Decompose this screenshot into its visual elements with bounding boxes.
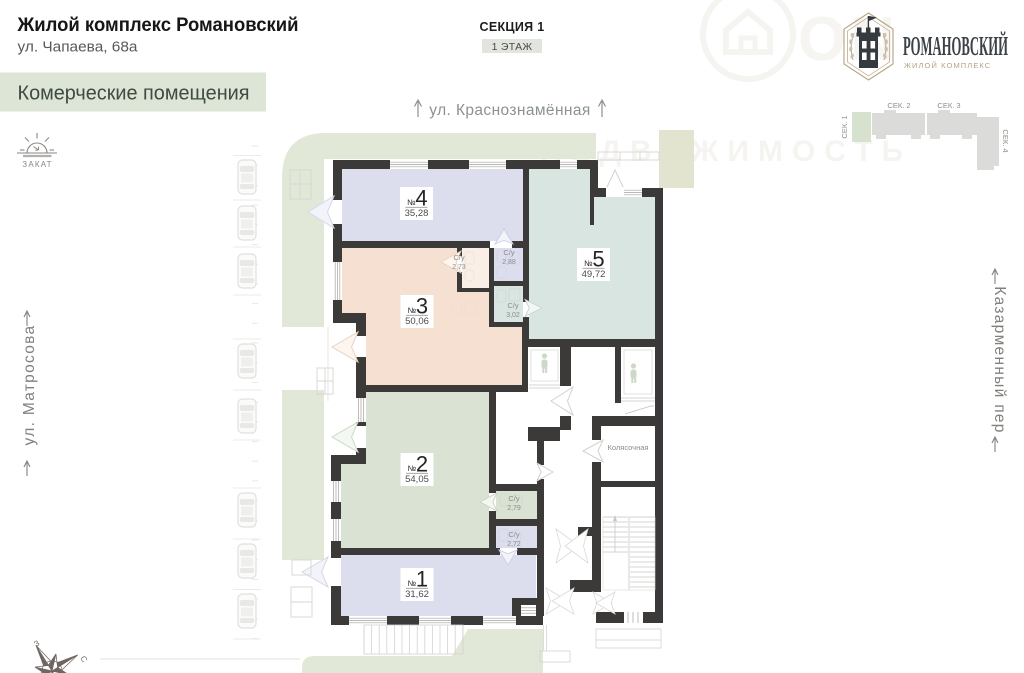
- svg-text:Казарменный пер: Казарменный пер: [991, 286, 1008, 433]
- svg-text:31,62: 31,62: [405, 589, 429, 600]
- svg-text:1: 1: [416, 567, 428, 592]
- svg-text:49,72: 49,72: [582, 269, 606, 280]
- svg-text:ул. Чапаева, 68а: ул. Чапаева, 68а: [18, 40, 139, 56]
- svg-text:ЖИЛОЙ КОМПЛЕКС: ЖИЛОЙ КОМПЛЕКС: [904, 61, 991, 70]
- svg-text:СЕК. 1: СЕК. 1: [840, 115, 849, 138]
- svg-text:З: З: [32, 638, 41, 648]
- svg-text:5: 5: [592, 247, 604, 272]
- svg-text:С/у: С/у: [508, 494, 520, 503]
- svg-text:3: 3: [416, 294, 428, 319]
- svg-text:1 ЭТАЖ: 1 ЭТАЖ: [492, 41, 533, 53]
- svg-text:С/у: С/у: [507, 301, 519, 310]
- svg-text:СЕКЦИЯ 1: СЕКЦИЯ 1: [480, 20, 545, 34]
- svg-text:С/у: С/у: [508, 530, 520, 539]
- svg-text:35,28: 35,28: [405, 208, 429, 219]
- svg-text:С/у: С/у: [503, 248, 515, 257]
- svg-text:2: 2: [416, 452, 428, 477]
- svg-text:2,88: 2,88: [502, 259, 516, 266]
- svg-text:Комерческие помещения: Комерческие помещения: [18, 83, 250, 105]
- svg-text:Колясочная: Колясочная: [608, 443, 649, 452]
- svg-text:С: С: [78, 654, 89, 664]
- svg-text:РОМАНОВСКИЙ: РОМАНОВСКИЙ: [903, 31, 1008, 61]
- svg-text:2,79: 2,79: [507, 505, 521, 512]
- svg-text:С/у: С/у: [453, 253, 465, 262]
- svg-text:54,05: 54,05: [405, 474, 429, 485]
- svg-text:ул. Матросова: ул. Матросова: [21, 325, 38, 446]
- svg-text:СЕК. 4: СЕК. 4: [1001, 129, 1010, 152]
- svg-text:ON: ON: [798, 5, 899, 74]
- svg-text:ул. Краснознамённая: ул. Краснознамённая: [429, 102, 590, 119]
- svg-text:ЗАКАТ: ЗАКАТ: [22, 160, 52, 169]
- svg-text:4: 4: [415, 186, 427, 211]
- svg-text:2,73: 2,73: [452, 264, 466, 271]
- svg-text:СЕК. 2: СЕК. 2: [887, 101, 910, 110]
- svg-text:СЕК. 3: СЕК. 3: [937, 101, 960, 110]
- svg-text:50,06: 50,06: [405, 316, 429, 327]
- svg-text:Жилой комплекс Романовский: Жилой комплекс Романовский: [17, 14, 299, 36]
- svg-text:2,72: 2,72: [507, 541, 521, 548]
- svg-text:3,02: 3,02: [506, 312, 520, 319]
